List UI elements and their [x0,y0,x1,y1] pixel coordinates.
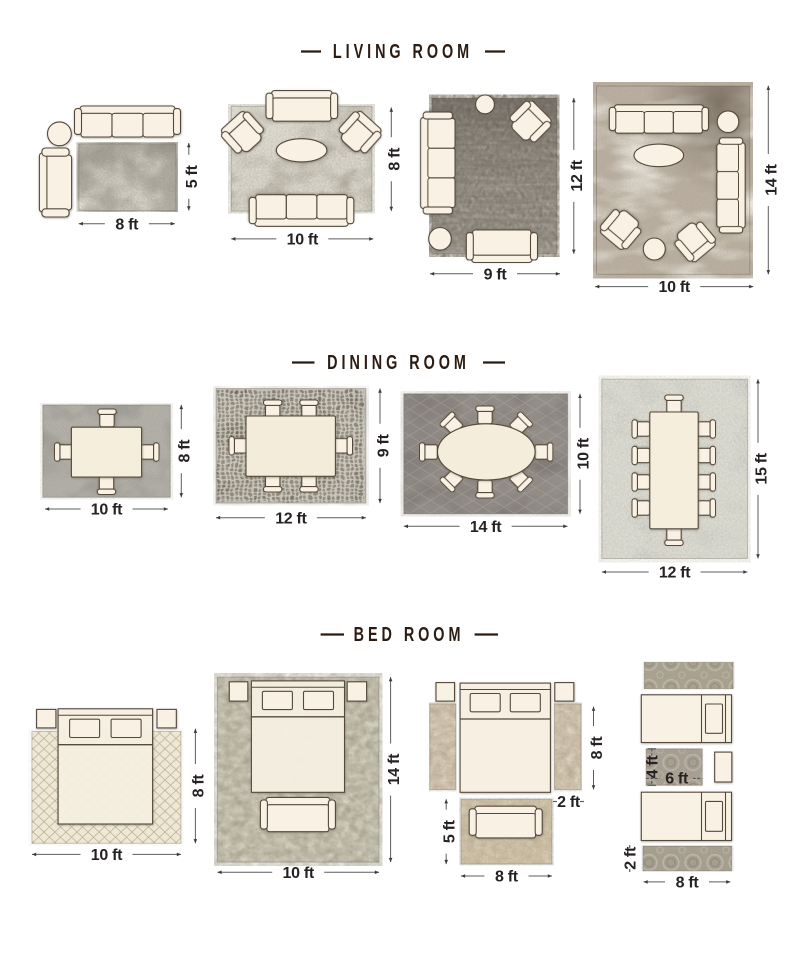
svg-text:5 ft: 5 ft [442,819,459,843]
svg-text:8 ft: 8 ft [191,774,208,798]
svg-text:2 ft: 2 ft [622,846,639,870]
svg-text:14 ft: 14 ft [386,753,403,785]
svg-text:5 ft: 5 ft [184,164,201,188]
svg-text:DINING ROOM: DINING ROOM [327,351,470,374]
svg-text:15 ft: 15 ft [753,452,770,484]
svg-text:10 ft: 10 ft [658,279,690,296]
svg-text:12 ft: 12 ft [659,565,691,582]
svg-text:8 ft: 8 ft [387,147,404,171]
svg-text:12 ft: 12 ft [569,159,586,191]
svg-text:10 ft: 10 ft [91,847,123,864]
svg-text:8 ft: 8 ft [589,736,606,760]
svg-text:8 ft: 8 ft [676,875,700,892]
svg-text:10 ft: 10 ft [287,232,319,249]
svg-text:BED ROOM: BED ROOM [354,623,465,646]
svg-text:8 ft: 8 ft [495,869,519,886]
svg-text:10 ft: 10 ft [91,502,123,519]
svg-text:14 ft: 14 ft [470,519,502,536]
svg-text:8 ft: 8 ft [115,216,139,233]
svg-text:4 ft: 4 ft [644,755,661,779]
svg-text:6 ft: 6 ft [665,771,689,788]
svg-text:2 ft: 2 ft [557,794,581,811]
svg-text:14 ft: 14 ft [764,163,781,195]
svg-text:9 ft: 9 ft [484,266,508,283]
svg-text:10 ft: 10 ft [575,437,592,469]
svg-text:9 ft: 9 ft [375,433,392,457]
svg-text:8 ft: 8 ft [177,439,194,463]
svg-text:10 ft: 10 ft [282,865,314,882]
svg-text:12 ft: 12 ft [275,510,307,527]
svg-text:LIVING ROOM: LIVING ROOM [333,40,473,63]
